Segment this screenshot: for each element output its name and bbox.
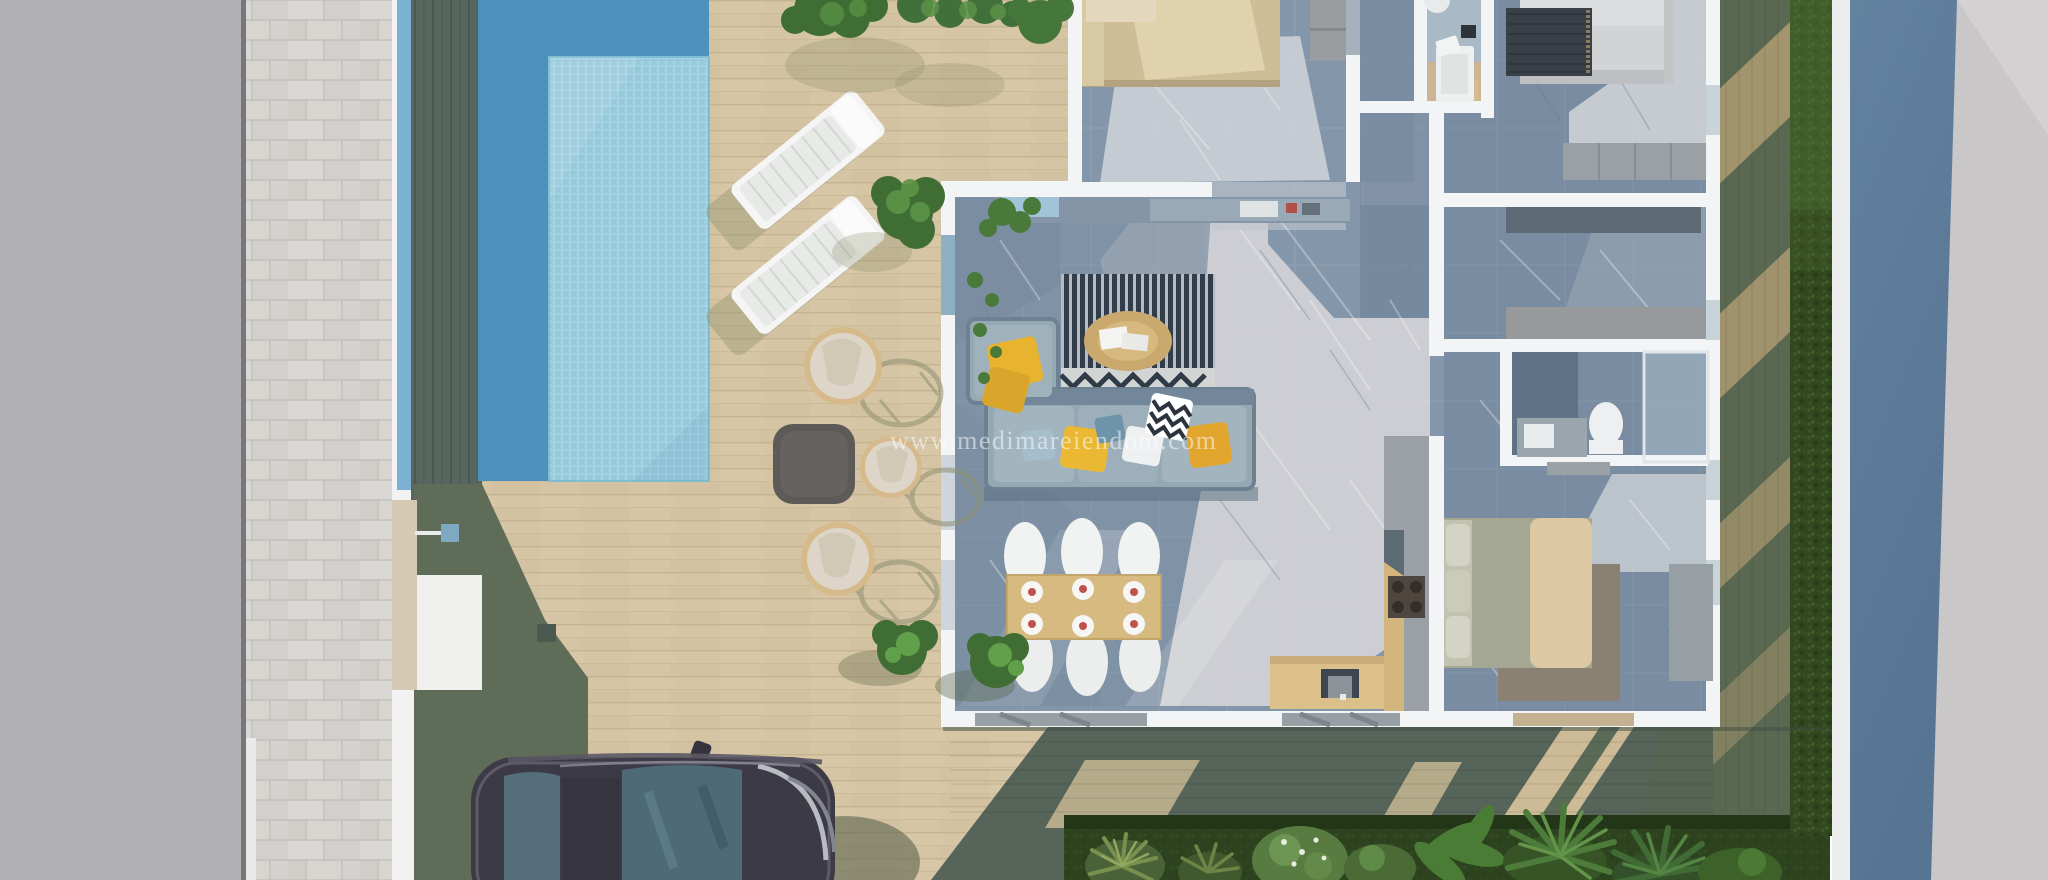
svg-text:www.medimareiendom.com: www.medimareiendom.com <box>890 426 1217 455</box>
